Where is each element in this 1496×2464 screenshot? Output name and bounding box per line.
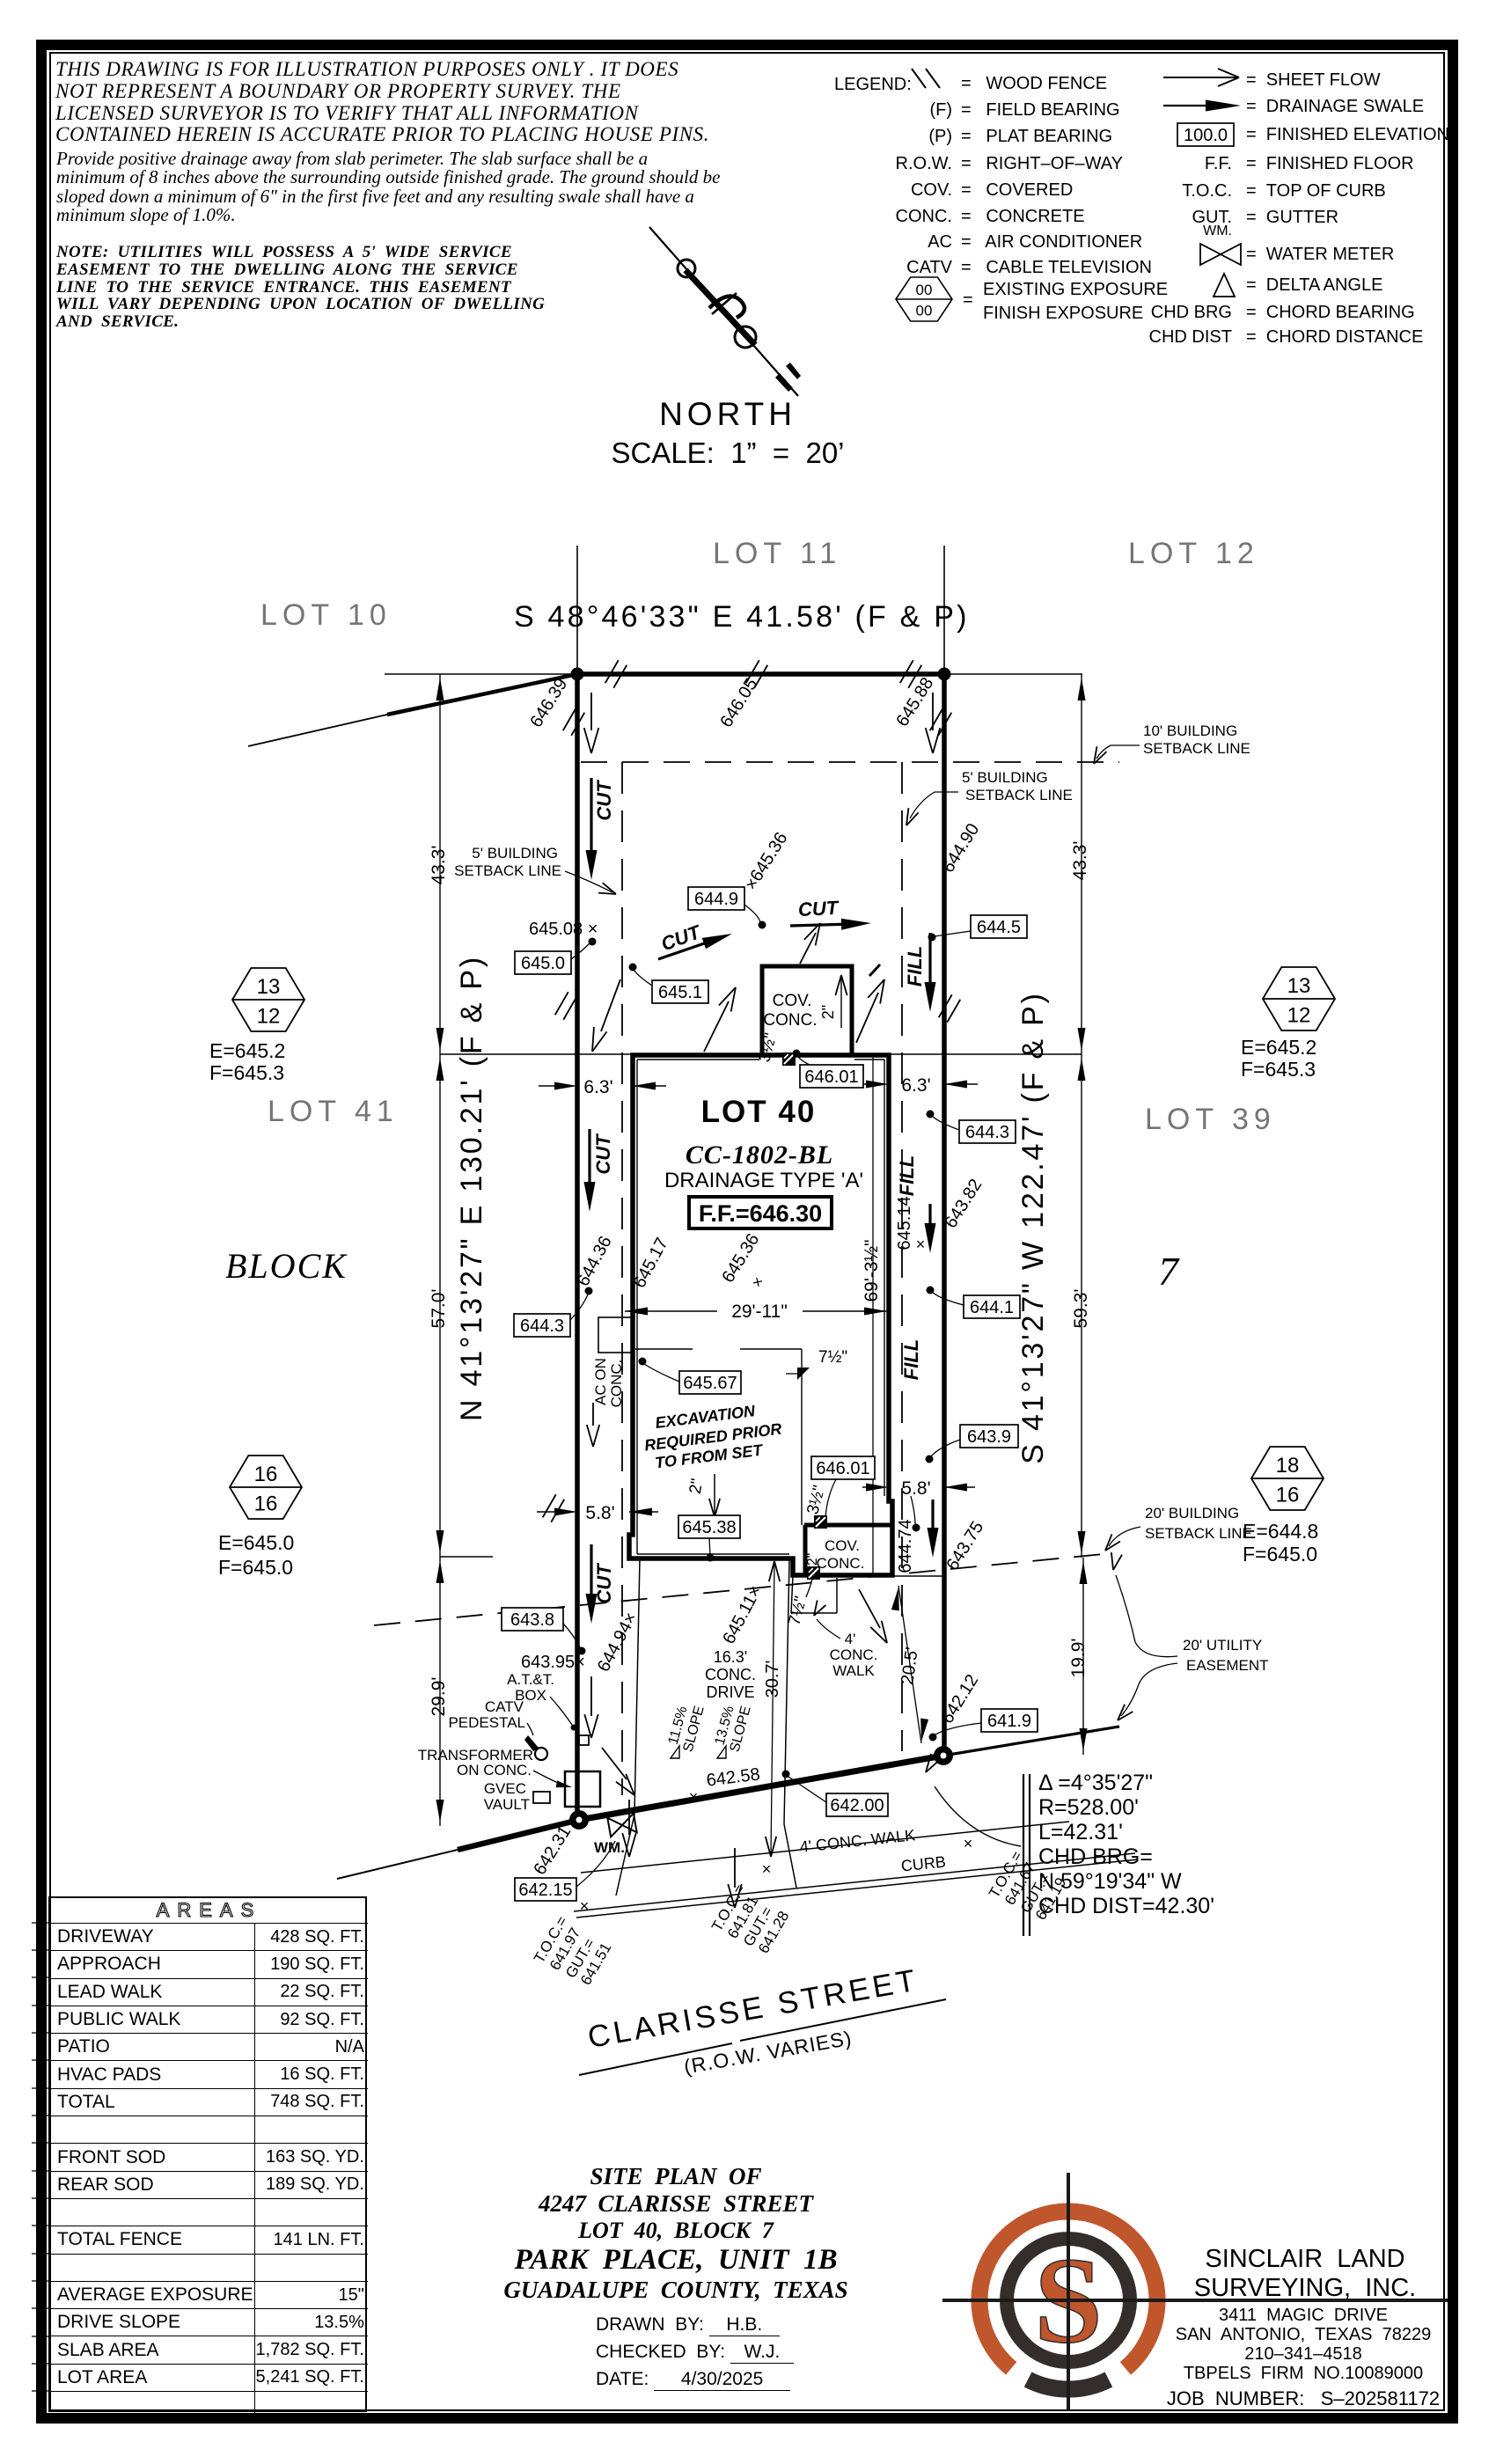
svg-text:644.1: 644.1 xyxy=(970,1298,1014,1317)
svg-text:7½": 7½" xyxy=(818,1348,847,1367)
svg-text:16: 16 xyxy=(254,1463,278,1486)
svg-text:645.1: 645.1 xyxy=(658,983,702,1002)
svg-text:×: × xyxy=(762,1860,772,1878)
svg-text:WALK: WALK xyxy=(832,1662,875,1679)
svg-text:645.38: 645.38 xyxy=(682,1518,736,1537)
svg-text:CHD BRG=: CHD BRG= xyxy=(1038,1844,1153,1869)
svg-text:N 59°19'34" W: N 59°19'34" W xyxy=(1038,1869,1182,1894)
svg-text:644.90: 644.90 xyxy=(938,820,983,876)
svg-text:×: × xyxy=(916,1236,926,1253)
svg-text:643.75: 643.75 xyxy=(942,1518,987,1574)
svg-text:LOT 41: LOT 41 xyxy=(268,1095,399,1128)
svg-text:SETBACK LINE: SETBACK LINE xyxy=(1143,740,1250,757)
svg-text:CURB: CURB xyxy=(900,1852,947,1874)
svg-text:643.82: 643.82 xyxy=(941,1176,986,1232)
svg-text:S 41°13'27" W 122.47' (F & P): S 41°13'27" W 122.47' (F & P) xyxy=(1016,991,1050,1464)
svg-text:643.8: 643.8 xyxy=(510,1610,554,1630)
svg-text:643.95×: 643.95× xyxy=(521,1653,585,1672)
svg-text:646.01: 646.01 xyxy=(816,1459,869,1478)
svg-text:PEDESTAL: PEDESTAL xyxy=(448,1714,525,1731)
svg-text:BLOCK: BLOCK xyxy=(225,1246,348,1286)
svg-text:×: × xyxy=(964,1835,973,1852)
svg-text:×645.36: ×645.36 xyxy=(741,829,791,893)
svg-text:12: 12 xyxy=(1287,1004,1311,1028)
svg-text:644.9: 644.9 xyxy=(694,890,738,909)
svg-text:644.94×: 644.94× xyxy=(594,1610,642,1676)
svg-text:643.9: 643.9 xyxy=(967,1427,1011,1447)
svg-text:16.3': 16.3' xyxy=(714,1648,747,1666)
svg-text:642.00: 642.00 xyxy=(830,1796,884,1815)
svg-text:3½": 3½" xyxy=(755,1031,781,1064)
svg-text:EASEMENT: EASEMENT xyxy=(1186,1657,1269,1674)
svg-text:645.88: 645.88 xyxy=(892,674,937,730)
svg-text:A.T.&T.: A.T.&T. xyxy=(507,1671,554,1688)
svg-text:642.15: 642.15 xyxy=(518,1881,572,1900)
svg-text:20' UTILITY: 20' UTILITY xyxy=(1183,1637,1262,1654)
svg-text:L=42.31': L=42.31' xyxy=(1038,1820,1123,1844)
svg-text:×: × xyxy=(748,1273,768,1291)
svg-text:SETBACK LINE: SETBACK LINE xyxy=(454,862,561,879)
svg-text:DRIVE: DRIVE xyxy=(706,1683,754,1701)
svg-text:F=645.3: F=645.3 xyxy=(209,1061,284,1084)
svg-text:644.3: 644.3 xyxy=(965,1123,1009,1142)
svg-text:4' CONC. WALK: 4' CONC. WALK xyxy=(799,1826,916,1856)
svg-text:CONC.: CONC. xyxy=(705,1666,756,1683)
svg-text:641.9: 641.9 xyxy=(987,1712,1031,1731)
svg-text:645.67: 645.67 xyxy=(683,1374,737,1393)
svg-text:642.31: 642.31 xyxy=(530,1822,575,1879)
svg-text:645.08 ×: 645.08 × xyxy=(529,920,598,939)
svg-text:5' BUILDING: 5' BUILDING xyxy=(472,845,558,862)
svg-text:7: 7 xyxy=(1158,1249,1180,1294)
svg-text:WM.: WM. xyxy=(594,1839,625,1856)
svg-text:5' BUILDING: 5' BUILDING xyxy=(962,769,1048,786)
svg-text:646.05: 646.05 xyxy=(716,675,761,731)
svg-text:LOT 10: LOT 10 xyxy=(260,598,392,632)
svg-text:642.12: 642.12 xyxy=(937,1671,982,1727)
svg-text:Δ =4°35'27": Δ =4°35'27" xyxy=(1038,1771,1153,1795)
svg-text:CHD DIST=42.30': CHD DIST=42.30' xyxy=(1038,1894,1214,1918)
svg-text:R=528.00': R=528.00' xyxy=(1038,1795,1139,1820)
svg-text:F=645.0: F=645.0 xyxy=(1243,1543,1317,1566)
svg-text:CLARISSE STREET: CLARISSE STREET xyxy=(585,1962,921,2055)
svg-text:GVEC: GVEC xyxy=(484,1780,526,1797)
svg-text:LOT 39: LOT 39 xyxy=(1145,1103,1276,1136)
svg-text:CONC.: CONC. xyxy=(830,1646,878,1663)
svg-text:20' BUILDING: 20' BUILDING xyxy=(1145,1505,1239,1522)
svg-text:SETBACK LINE: SETBACK LINE xyxy=(1145,1525,1252,1542)
svg-text:F=645.0: F=645.0 xyxy=(218,1556,293,1579)
svg-text:16: 16 xyxy=(254,1492,278,1516)
svg-text:VAULT: VAULT xyxy=(484,1796,530,1813)
svg-text:×: × xyxy=(580,1897,590,1915)
svg-text:642.58: 642.58 xyxy=(706,1764,761,1790)
svg-text:12: 12 xyxy=(257,1005,281,1029)
svg-text:645.11×: 645.11× xyxy=(719,1583,766,1647)
svg-text:ON CONC.: ON CONC. xyxy=(457,1762,532,1778)
svg-text:644.5: 644.5 xyxy=(977,918,1021,937)
svg-text:18: 18 xyxy=(1276,1454,1300,1478)
svg-text:E=644.8: E=644.8 xyxy=(1243,1520,1318,1543)
svg-text:S 48°46'33" E 41.58' (F & P): S 48°46'33" E 41.58' (F & P) xyxy=(514,600,970,634)
svg-text:16: 16 xyxy=(1276,1484,1300,1507)
svg-text:SETBACK LINE: SETBACK LINE xyxy=(965,787,1073,803)
svg-text:E=645.2: E=645.2 xyxy=(1241,1036,1316,1059)
svg-text:N 41°13'27" E 130.21' (F & P): N 41°13'27" E 130.21' (F & P) xyxy=(455,955,488,1421)
svg-text:646.39: 646.39 xyxy=(526,675,571,731)
svg-text:10' BUILDING: 10' BUILDING xyxy=(1143,722,1237,739)
svg-text:LOT 12: LOT 12 xyxy=(1128,537,1259,570)
svg-text:E=645.2: E=645.2 xyxy=(209,1039,285,1062)
svg-text:F=645.3: F=645.3 xyxy=(1241,1058,1316,1081)
svg-text:LOT 11: LOT 11 xyxy=(713,537,841,570)
svg-text:644.36: 644.36 xyxy=(574,1233,616,1289)
svg-text:646.01: 646.01 xyxy=(804,1067,858,1087)
svg-text:13: 13 xyxy=(1287,974,1311,998)
svg-text:×: × xyxy=(689,1788,699,1806)
svg-text:645.17: 645.17 xyxy=(630,1235,672,1291)
svg-text:3½": 3½" xyxy=(803,1484,829,1516)
svg-text:E=645.0: E=645.0 xyxy=(218,1531,294,1554)
svg-text:13: 13 xyxy=(257,975,281,999)
svg-text:4': 4' xyxy=(845,1631,856,1647)
svg-text:645.14: 645.14 xyxy=(895,1196,914,1250)
svg-text:CATV: CATV xyxy=(485,1698,524,1715)
svg-text:644.3: 644.3 xyxy=(520,1316,564,1336)
svg-text:645.0: 645.0 xyxy=(521,954,565,973)
